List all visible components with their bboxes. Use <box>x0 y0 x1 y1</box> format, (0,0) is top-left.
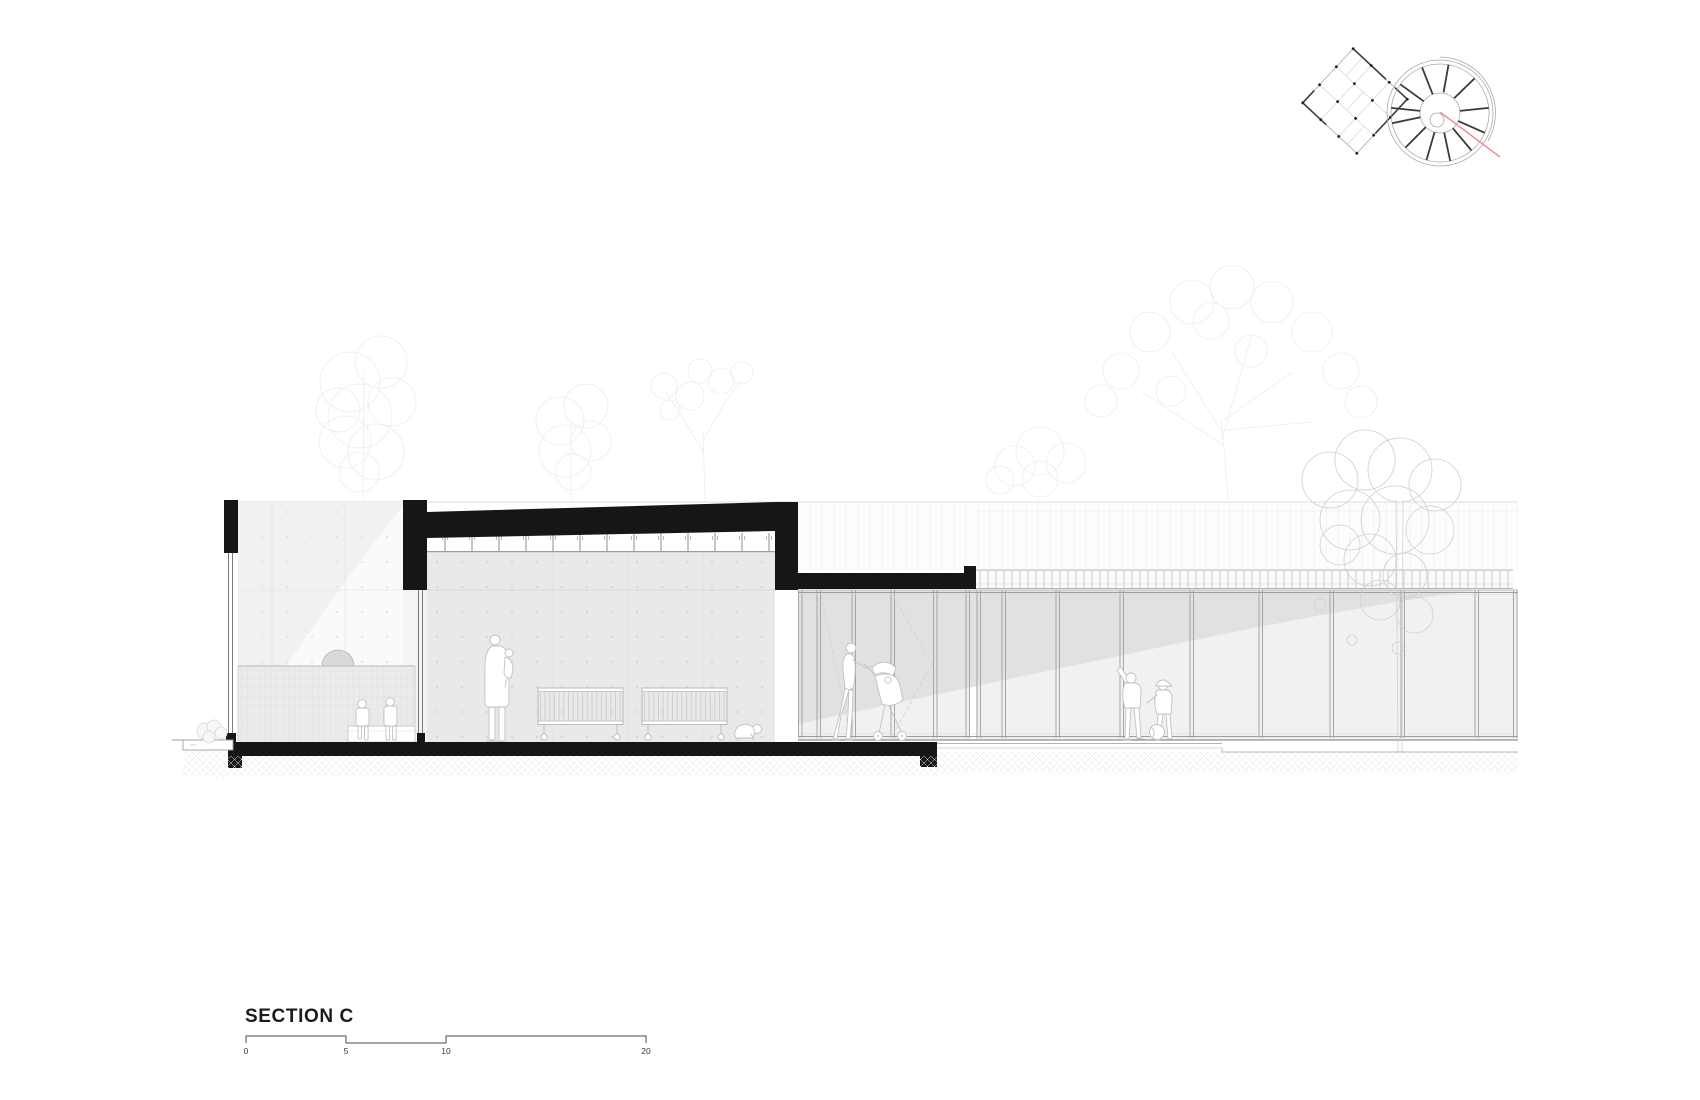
bush-mid <box>986 427 1086 497</box>
background-band-right <box>798 503 1518 570</box>
cut-column <box>775 502 798 590</box>
key-plan-rect-building <box>1301 47 1410 156</box>
tree-branchy <box>651 359 753 500</box>
drawing-title: SECTION C <box>245 1006 354 1027</box>
tree-large <box>1085 265 1377 500</box>
cut-hall-wall <box>403 500 427 590</box>
roof-fascia <box>976 570 1513 589</box>
key-plan-round-building <box>1387 57 1496 166</box>
cut-roof-beam <box>427 502 775 538</box>
cut-floor-slab <box>228 742 937 756</box>
scale-label-0: 0 <box>244 1046 249 1056</box>
cut-left-post <box>224 500 238 553</box>
section-drawing: SECTION C 0 5 10 20 <box>0 0 1700 1100</box>
scale-bar: 0 5 10 20 <box>244 1036 651 1056</box>
tree-mid-left <box>536 384 611 500</box>
background-trees <box>316 265 1377 500</box>
scale-label-10: 10 <box>441 1046 451 1056</box>
scale-label-5: 5 <box>344 1046 349 1056</box>
scale-label-20: 20 <box>641 1046 651 1056</box>
tree-left <box>316 336 416 500</box>
key-plan <box>1301 47 1500 166</box>
mullion-foot-mid <box>417 733 425 742</box>
